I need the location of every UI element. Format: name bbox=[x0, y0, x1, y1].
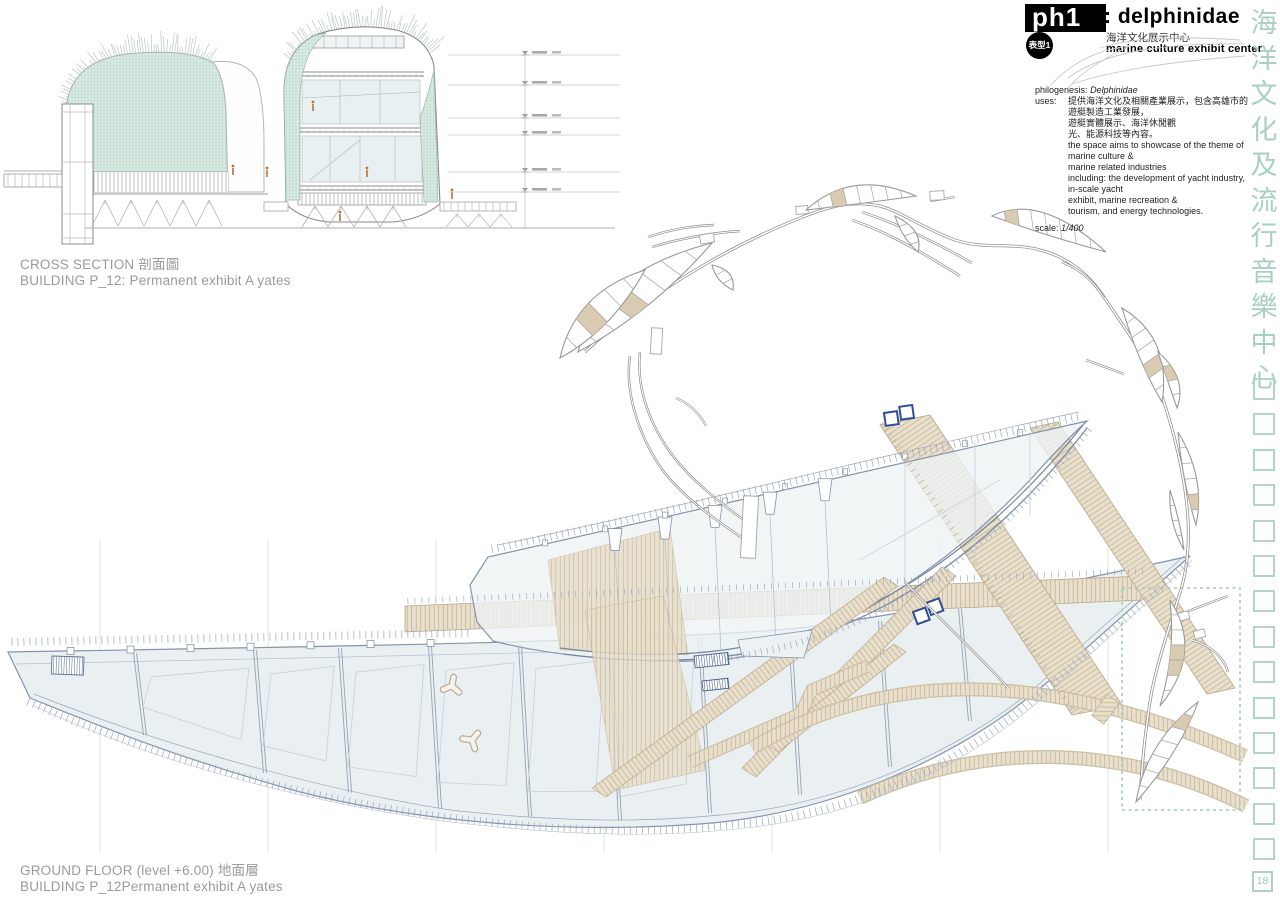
placeholder-box-icon bbox=[1253, 732, 1275, 754]
scale-value: 1/400 bbox=[1061, 223, 1084, 233]
placeholder-box-icon bbox=[1253, 484, 1275, 506]
placeholder-box-icon bbox=[1253, 803, 1275, 825]
uses-text-zh: 提供海洋文化及相關產業展示，包含高雄市的遊艇製造工業發展，遊艇實體展示、海洋休閒… bbox=[1068, 96, 1253, 140]
vertical-title-char: 化 bbox=[1248, 113, 1280, 147]
vertical-title-char: 中 bbox=[1248, 326, 1280, 360]
portfolio-sheet: { "page": {"background": "#ffffff"}, "he… bbox=[0, 0, 1280, 903]
vertical-title-char: 行 bbox=[1248, 219, 1280, 253]
placeholder-box-icon bbox=[1253, 590, 1275, 612]
ground-floor-level: (level +6.00) bbox=[137, 863, 214, 878]
placeholder-box-icon bbox=[1253, 378, 1275, 400]
phase-code-box: ph1 bbox=[1025, 4, 1106, 32]
cross-section-title-zh: 剖面圖 bbox=[138, 257, 179, 272]
philogenesis-value: Delphinidae bbox=[1090, 85, 1138, 95]
project-info-block: philogenesis: Delphinidae uses: 提供海洋文化及相… bbox=[1035, 85, 1253, 234]
cross-section-title: CROSS SECTION bbox=[20, 257, 134, 272]
vertical-title-char: 及 bbox=[1248, 148, 1280, 182]
placeholder-box-icon bbox=[1253, 697, 1275, 719]
ground-floor-title: GROUND FLOOR bbox=[20, 863, 133, 878]
uses-label: uses: bbox=[1035, 96, 1057, 107]
cross-section-label: CROSS SECTION 剖面圖 BUILDING P_12: Permane… bbox=[20, 257, 291, 289]
page-title: : delphinidae bbox=[1104, 5, 1240, 29]
placeholder-box-icon bbox=[1253, 626, 1275, 648]
vertical-title-char: 文 bbox=[1248, 77, 1280, 111]
placeholder-box-icon bbox=[1253, 449, 1275, 471]
placeholder-box-icon bbox=[1253, 555, 1275, 577]
placeholder-box-icon bbox=[1253, 838, 1275, 860]
vertical-title-char: 音 bbox=[1248, 255, 1280, 289]
cross-section-subtitle: BUILDING P_12: Permanent exhibit A yates bbox=[20, 273, 291, 289]
scale-label: scale: bbox=[1035, 223, 1059, 233]
vertical-title-char: 流 bbox=[1248, 184, 1280, 218]
placeholder-box-icon bbox=[1253, 413, 1275, 435]
side-title-column: 海洋文化及流行音樂中心 bbox=[1248, 0, 1280, 903]
ground-floor-label: GROUND FLOOR (level +6.00) 地面層 BUILDING … bbox=[20, 863, 283, 895]
ground-floor-subtitle: BUILDING P_12Permanent exhibit A yates bbox=[20, 879, 283, 895]
phase-code: ph1 bbox=[1032, 2, 1081, 32]
page-number-badge: 18 bbox=[1252, 871, 1273, 892]
placeholder-box-icon bbox=[1253, 767, 1275, 789]
vertical-title-char: 洋 bbox=[1248, 42, 1280, 76]
uses-text-en: the space aims to showcase of the theme … bbox=[1068, 140, 1253, 217]
vertical-title-char: 海 bbox=[1248, 6, 1280, 40]
ground-floor-title-zh: 地面層 bbox=[218, 863, 259, 878]
placeholder-box-icon bbox=[1253, 520, 1275, 542]
vertical-title-char: 樂 bbox=[1248, 290, 1280, 324]
philogenesis-label: philogenesis: bbox=[1035, 85, 1088, 95]
placeholder-box-icon bbox=[1253, 661, 1275, 683]
